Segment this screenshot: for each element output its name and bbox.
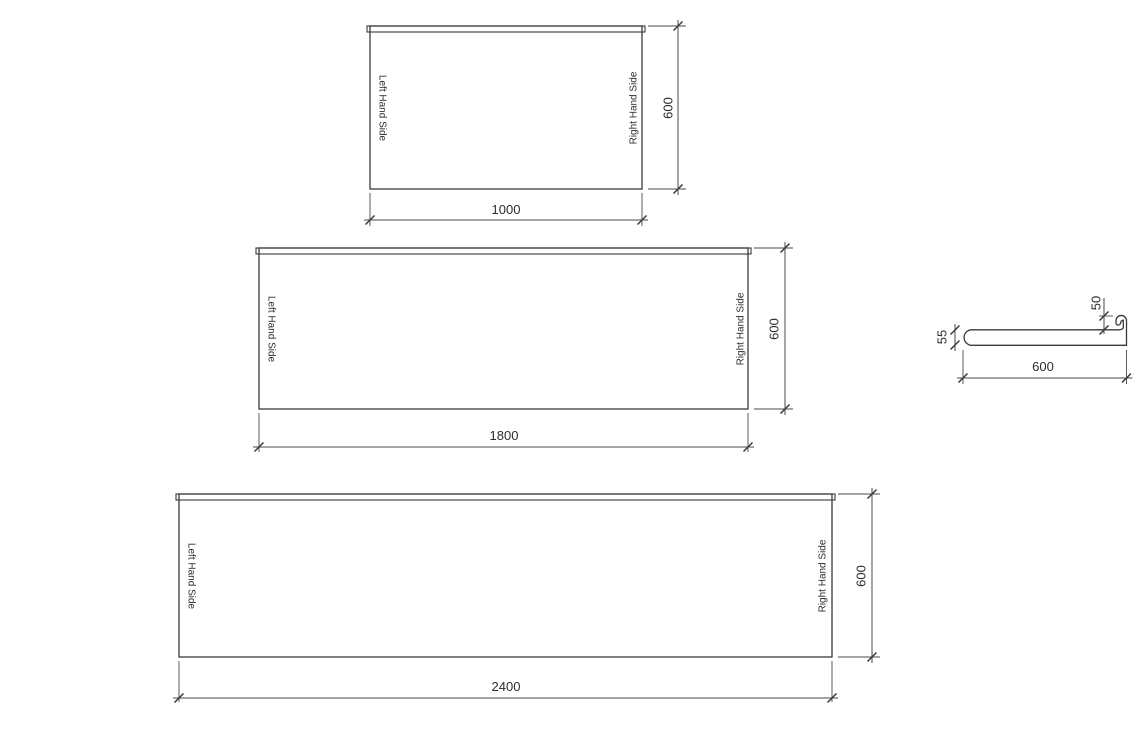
panel-1000-height-dimension: 600 (648, 20, 686, 195)
panel-1000-top-edge-band (367, 26, 645, 32)
panel-1000-height-dimension-label: 600 (661, 97, 676, 119)
profile-outline (964, 315, 1126, 345)
panel-2400-top-edge-band (176, 494, 835, 500)
panel-1000-width-dimension-label: 1000 (492, 202, 521, 217)
panel-1800-width-dimension: 1800 (253, 413, 754, 452)
profile-lip-height-dimension: 50 (1089, 296, 1114, 335)
panel-1800-height-dimension-label: 600 (767, 318, 782, 340)
panel-1800-body (259, 248, 748, 409)
panel-2400-width-dimension: 2400 (173, 661, 838, 703)
panel-2400-left-hand-side-label: Left Hand Side (186, 543, 197, 610)
profile-depth-label: 600 (1032, 359, 1054, 374)
technical-drawing: Left Hand Side Right Hand Side 600 1000 … (0, 0, 1148, 732)
profile-lip-height-label: 50 (1089, 296, 1104, 310)
profile-section: 50 55 600 (935, 296, 1133, 384)
panel-2400-right-hand-side-label: Right Hand Side (818, 539, 829, 612)
panel-1800-width-dimension-label: 1800 (490, 428, 519, 443)
panel-1000-left-hand-side-label: Left Hand Side (377, 75, 388, 142)
profile-thickness-label: 55 (935, 330, 950, 344)
panel-1800-top-edge-band (256, 248, 751, 254)
panel-1800-right-hand-side-label: Right Hand Side (736, 292, 747, 365)
drawing-canvas: Left Hand Side Right Hand Side 600 1000 … (0, 0, 1148, 732)
panel-2400-height-dimension-label: 600 (854, 565, 869, 587)
panel-1000: Left Hand Side Right Hand Side 600 1000 (364, 20, 686, 226)
panel-1800: Left Hand Side Right Hand Side 600 1800 (253, 242, 793, 452)
panel-1800-height-dimension: 600 (754, 242, 793, 415)
panel-1000-width-dimension: 1000 (364, 193, 648, 226)
panel-1800-left-hand-side-label: Left Hand Side (266, 296, 277, 363)
panel-1000-body (370, 26, 642, 189)
panel-2400-width-dimension-label: 2400 (492, 679, 521, 694)
panel-2400-body (179, 494, 832, 657)
profile-thickness-dimension: 55 (935, 324, 960, 351)
panel-2400: Left Hand Side Right Hand Side 600 2400 (173, 488, 880, 703)
profile-depth-dimension: 600 (957, 350, 1133, 384)
panel-2400-height-dimension: 600 (838, 488, 880, 663)
panel-1000-right-hand-side-label: Right Hand Side (629, 71, 640, 144)
